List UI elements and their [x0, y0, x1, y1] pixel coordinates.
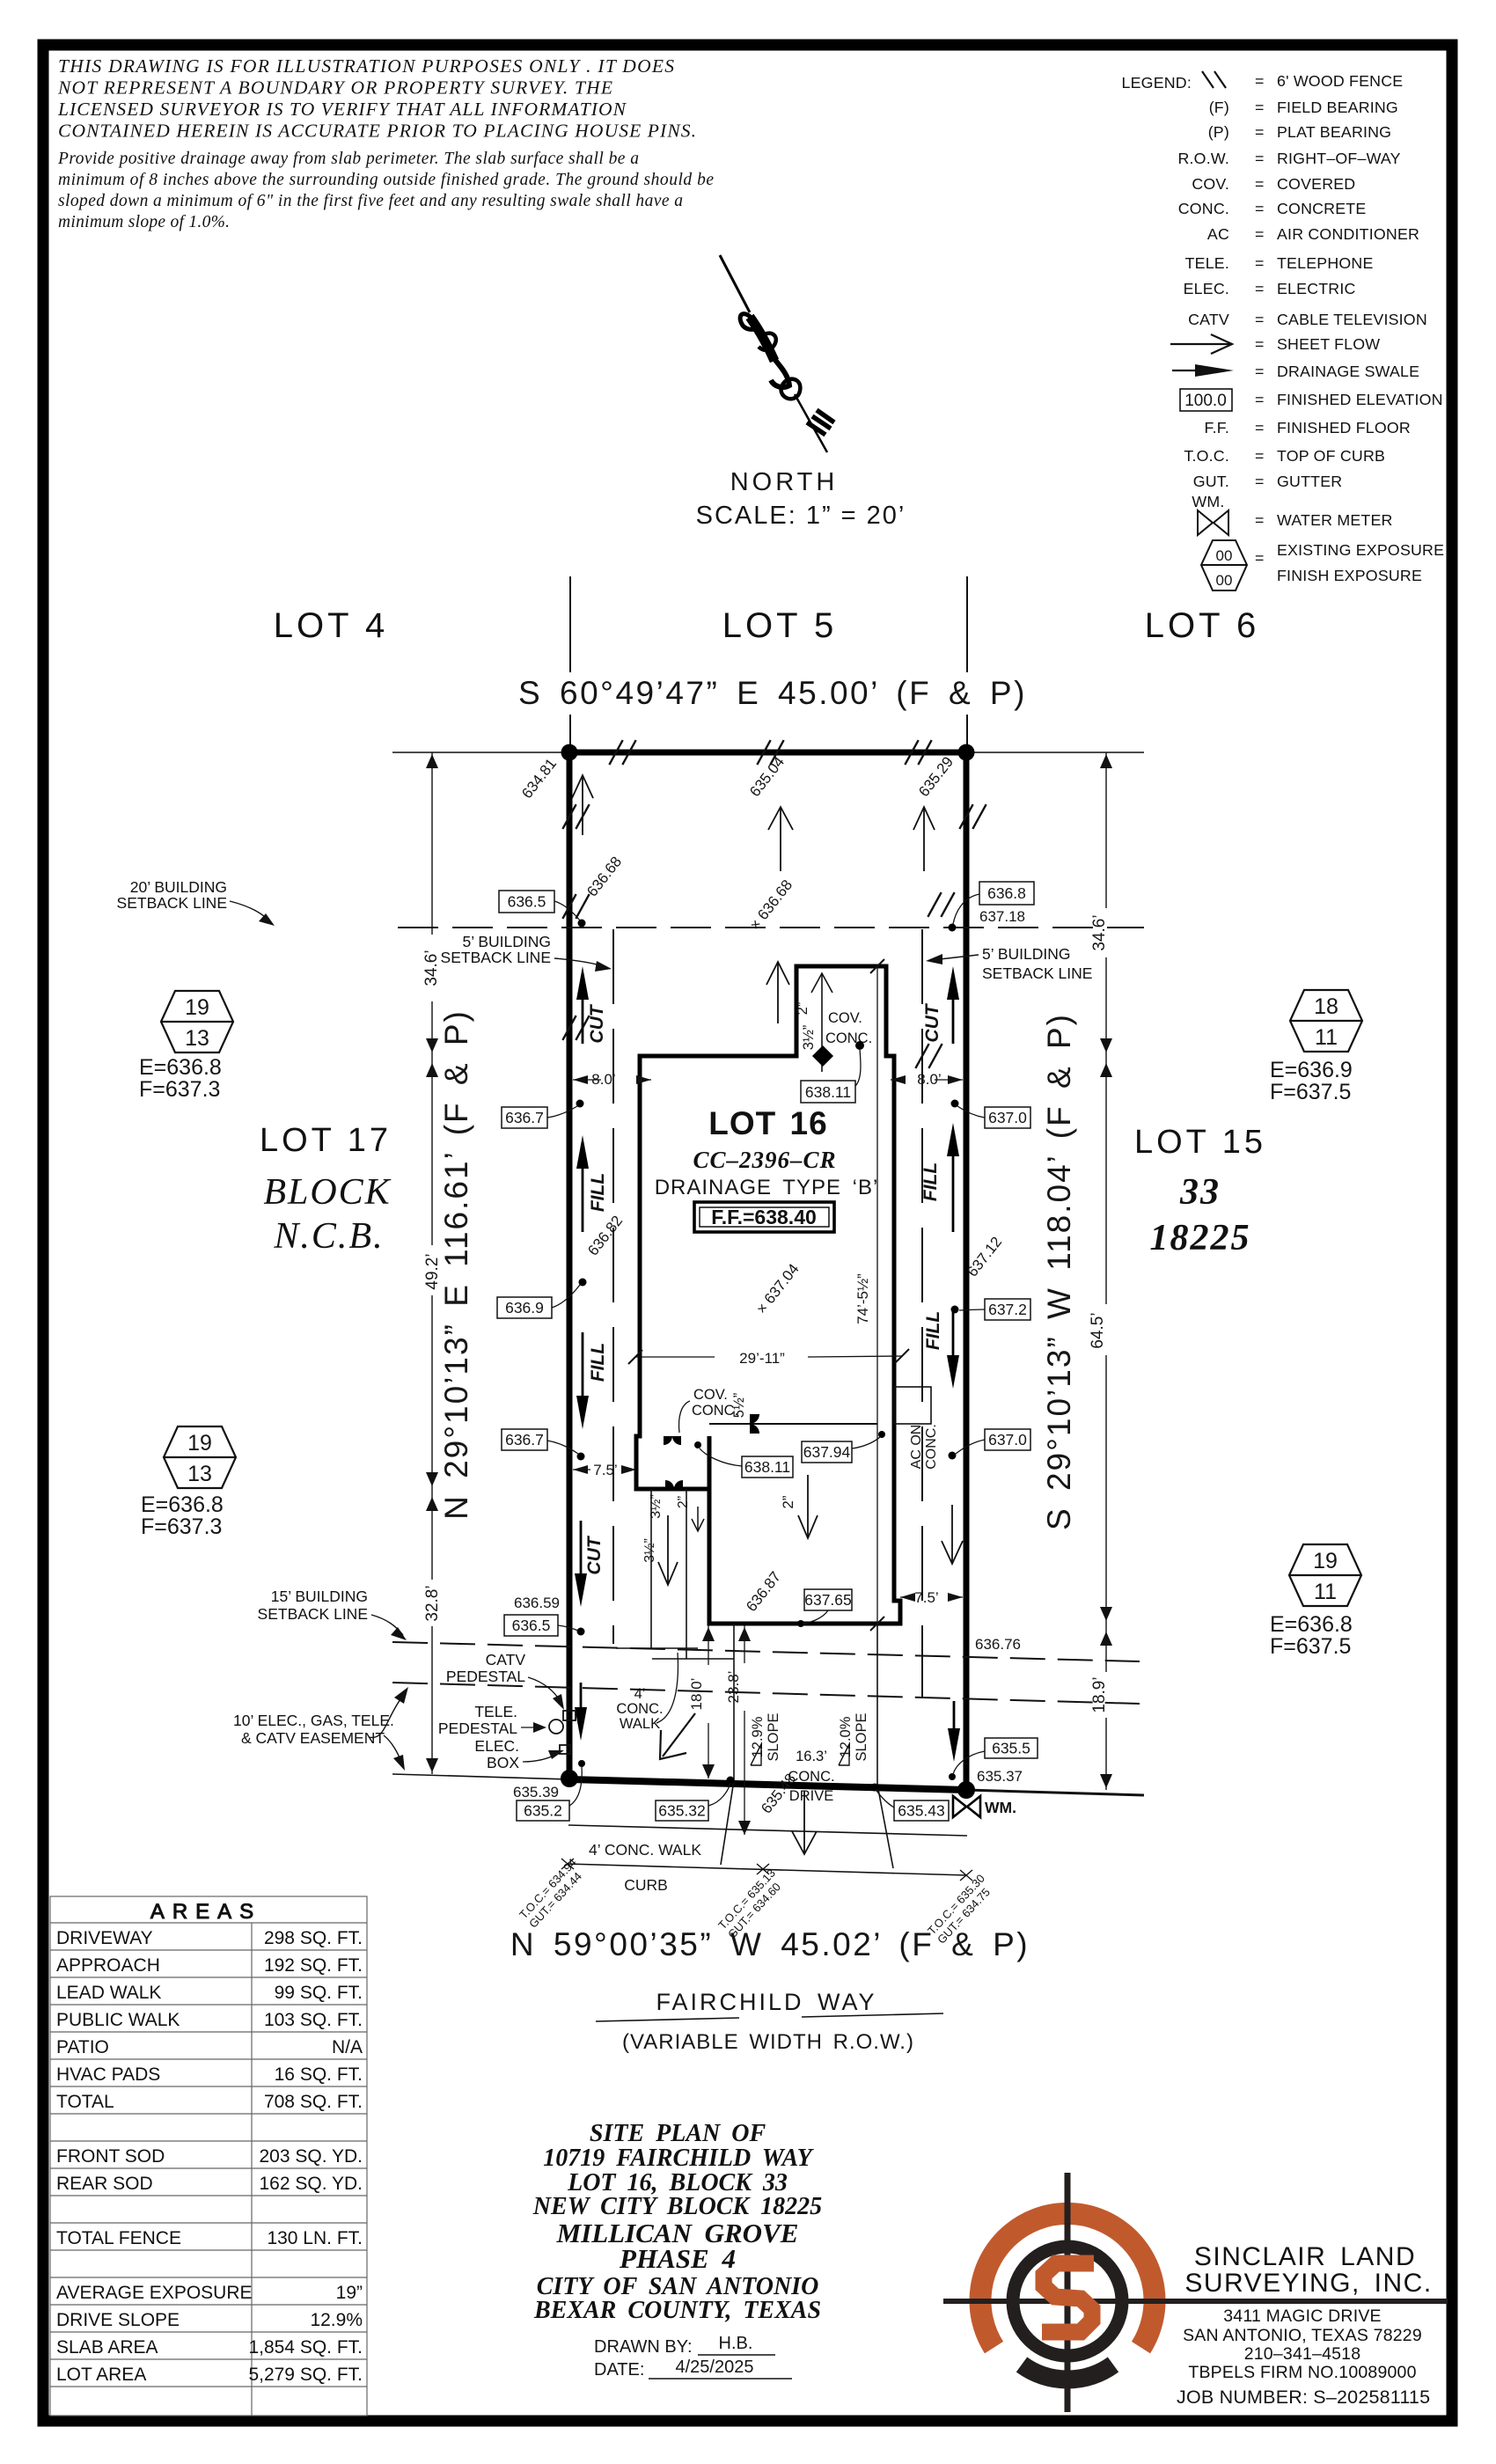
svg-text:130 LN. FT.: 130 LN. FT. [267, 2228, 363, 2248]
svg-text:HVAC PADS: HVAC PADS [56, 2064, 160, 2085]
svg-text:minimum slope of 1.0%.: minimum slope of 1.0%. [58, 213, 230, 231]
svg-text:TELE.: TELE. [474, 1703, 517, 1720]
svg-text:16.3’: 16.3’ [796, 1749, 827, 1764]
svg-text:11: 11 [1314, 1580, 1337, 1604]
svg-text:NOT REPRESENT A BOUNDARY OR PR: NOT REPRESENT A BOUNDARY OR PROPERTY SUR… [57, 77, 612, 99]
svg-text:CATV: CATV [1188, 311, 1229, 328]
svg-text:18.9’: 18.9’ [1090, 1676, 1109, 1712]
svg-text:=: = [1255, 175, 1265, 193]
svg-text:=: = [1255, 311, 1265, 328]
svg-text:CABLE TELEVISION: CABLE TELEVISION [1277, 311, 1427, 328]
svg-text:JOB NUMBER: S–202581115: JOB NUMBER: S–202581115 [1177, 2387, 1430, 2408]
svg-text:LOT 6: LOT 6 [1145, 606, 1259, 645]
svg-text:E=636.8: E=636.8 [141, 1492, 224, 1517]
svg-text:F=637.3: F=637.3 [141, 1514, 222, 1539]
svg-text:SETBACK LINE: SETBACK LINE [117, 894, 227, 912]
svg-text:H.B.: H.B. [719, 2334, 753, 2353]
svg-text:162 SQ. YD.: 162 SQ. YD. [259, 2174, 363, 2194]
svg-text:6' WOOD FENCE: 6' WOOD FENCE [1277, 72, 1403, 90]
svg-text:210–341–4518: 210–341–4518 [1244, 2344, 1361, 2364]
svg-text:DRAINAGE TYPE ‘B’: DRAINAGE TYPE ‘B’ [655, 1176, 879, 1199]
svg-text:CONC.: CONC. [616, 1701, 663, 1717]
svg-text:637.18: 637.18 [979, 908, 1025, 925]
svg-text:FINISHED FLOOR: FINISHED FLOOR [1277, 419, 1411, 436]
svg-text:00: 00 [1216, 547, 1233, 564]
svg-text:CONC.: CONC. [692, 1403, 738, 1419]
svg-text:GUTTER: GUTTER [1277, 473, 1342, 490]
svg-text:FINISHED ELEVATION: FINISHED ELEVATION [1277, 391, 1443, 408]
svg-text:PHASE 4: PHASE 4 [619, 2243, 736, 2274]
svg-text:PEDESTAL: PEDESTAL [438, 1720, 517, 1737]
svg-text:N.C.B.: N.C.B. [273, 1216, 384, 1257]
svg-text:99 SQ. FT.: 99 SQ. FT. [275, 1983, 363, 2003]
svg-text:CONC.: CONC. [1178, 200, 1229, 217]
svg-text:3411 MAGIC DRIVE: 3411 MAGIC DRIVE [1223, 2306, 1381, 2326]
svg-text:FRONT SOD: FRONT SOD [56, 2146, 165, 2167]
svg-text:DRAINAGE SWALE: DRAINAGE SWALE [1277, 363, 1419, 380]
svg-text:F.F.=638.40: F.F.=638.40 [711, 1206, 817, 1228]
svg-text:TELEPHONE: TELEPHONE [1277, 254, 1374, 272]
svg-text:23.8’: 23.8’ [725, 1671, 742, 1704]
svg-text:TOTAL: TOTAL [56, 2092, 114, 2112]
svg-text:COV.: COV. [1192, 175, 1229, 193]
svg-text:638.11: 638.11 [805, 1083, 851, 1101]
svg-text:=: = [1255, 254, 1265, 272]
svg-text:TOP OF CURB: TOP OF CURB [1277, 447, 1385, 465]
svg-text:5’ BUILDING: 5’ BUILDING [982, 945, 1071, 963]
svg-text:ELECTRIC: ELECTRIC [1277, 280, 1356, 297]
svg-text:FILL: FILL [588, 1343, 608, 1382]
svg-text:COVERED: COVERED [1277, 175, 1355, 193]
svg-text:FILL: FILL [588, 1173, 608, 1212]
svg-text:636.5: 636.5 [512, 1617, 551, 1634]
svg-text:GUT.: GUT. [1193, 473, 1229, 490]
svg-text:298 SQ. FT.: 298 SQ. FT. [264, 1928, 363, 1948]
svg-text:32.8’: 32.8’ [423, 1585, 442, 1621]
svg-text:203 SQ. YD.: 203 SQ. YD. [259, 2146, 363, 2167]
svg-text:636.9: 636.9 [505, 1299, 544, 1316]
svg-text:FILL: FILL [920, 1162, 941, 1201]
svg-text:NORTH: NORTH [730, 468, 839, 496]
svg-text:PATIO: PATIO [56, 2037, 109, 2057]
svg-text:APPROACH: APPROACH [56, 1955, 160, 1976]
svg-text:ELEC.: ELEC. [474, 1737, 519, 1755]
svg-text:10719 FAIRCHILD WAY: 10719 FAIRCHILD WAY [543, 2145, 814, 2172]
svg-text:CONTAINED HEREIN IS ACCURATE P: CONTAINED HEREIN IS ACCURATE PRIOR TO PL… [58, 121, 696, 142]
svg-text:SCALE: 1” = 20’: SCALE: 1” = 20’ [696, 502, 906, 530]
svg-text:SLAB AREA: SLAB AREA [56, 2337, 158, 2358]
svg-text:20’ BUILDING: 20’ BUILDING [130, 878, 227, 896]
svg-text:DRIVE: DRIVE [789, 1788, 833, 1804]
svg-text:PEDESTAL: PEDESTAL [446, 1668, 525, 1685]
svg-text:100.0: 100.0 [1184, 392, 1227, 410]
svg-text:S 60°49’47” E 45.00’ (F &: S 60°49’47” E 45.00’ (F & P) [518, 675, 1027, 711]
svg-text:SLOPE: SLOPE [854, 1712, 869, 1761]
svg-text:=: = [1255, 200, 1265, 217]
svg-text:WM.: WM. [1192, 493, 1224, 510]
svg-text:34.6’: 34.6’ [1090, 914, 1109, 950]
svg-text:=: = [1255, 280, 1265, 297]
svg-text:192 SQ. FT.: 192 SQ. FT. [264, 1955, 363, 1976]
svg-text:635.43: 635.43 [898, 1802, 945, 1820]
svg-text:WATER METER: WATER METER [1277, 511, 1393, 529]
svg-text:34.6’: 34.6’ [422, 950, 441, 986]
svg-text:CUT: CUT [922, 1002, 942, 1042]
svg-text:FIELD BEARING: FIELD BEARING [1277, 99, 1398, 116]
svg-text:=: = [1255, 473, 1265, 490]
svg-text:LICENSED SURVEYOR IS TO VERIFY: LICENSED SURVEYOR IS TO VERIFY THAT ALL … [57, 99, 627, 120]
svg-text:CUT: CUT [587, 1003, 607, 1043]
svg-text:(P): (P) [1208, 123, 1229, 141]
svg-text:4’ CONC. WALK: 4’ CONC. WALK [589, 1841, 701, 1859]
svg-text:=: = [1255, 123, 1265, 141]
svg-text:WM.: WM. [985, 1799, 1016, 1816]
svg-text:636.7: 636.7 [505, 1109, 544, 1126]
svg-text:636.76: 636.76 [975, 1636, 1021, 1653]
svg-text:LOT 15: LOT 15 [1134, 1124, 1266, 1161]
svg-text:AC: AC [1207, 225, 1229, 243]
svg-text:& CATV EASEMENT: & CATV EASEMENT [241, 1729, 385, 1747]
svg-text:NEW CITY BLOCK 18225: NEW CITY BLOCK 18225 [532, 2193, 822, 2220]
svg-text:PUBLIC WALK: PUBLIC WALK [56, 2010, 180, 2030]
svg-text:THIS DRAWING IS FOR ILLUSTRATI: THIS DRAWING IS FOR ILLUSTRATION PURPOSE… [58, 55, 674, 77]
svg-text:CUT: CUT [584, 1535, 605, 1574]
svg-text:637.0: 637.0 [988, 1431, 1027, 1448]
svg-text:708 SQ. FT.: 708 SQ. FT. [264, 2092, 363, 2112]
svg-text:637.2: 637.2 [988, 1301, 1027, 1318]
svg-text:SETBACK LINE: SETBACK LINE [441, 949, 551, 966]
svg-text:00: 00 [1216, 572, 1233, 589]
svg-text:SURVEYING, INC.: SURVEYING, INC. [1184, 2269, 1432, 2298]
svg-text:635.2: 635.2 [524, 1802, 562, 1820]
svg-text:=: = [1255, 419, 1265, 436]
svg-text:2”: 2” [795, 1002, 810, 1016]
svg-text:=: = [1255, 150, 1265, 167]
svg-text:SETBACK LINE: SETBACK LINE [258, 1605, 368, 1623]
svg-text:F=637.5: F=637.5 [1270, 1080, 1351, 1104]
svg-text:T.O.C.: T.O.C. [1184, 447, 1229, 465]
svg-text:COV.: COV. [693, 1387, 728, 1403]
svg-text:636.59: 636.59 [514, 1595, 560, 1611]
svg-text:=: = [1255, 72, 1265, 90]
svg-text:5’ BUILDING: 5’ BUILDING [463, 933, 552, 950]
svg-text:CONC.: CONC. [825, 1030, 872, 1046]
svg-text:DRAWN BY:: DRAWN BY: [594, 2337, 693, 2357]
svg-text:636.8: 636.8 [987, 884, 1026, 902]
svg-text:1,854 SQ. FT.: 1,854 SQ. FT. [248, 2337, 363, 2358]
svg-text:DRIVE SLOPE: DRIVE SLOPE [56, 2310, 180, 2330]
svg-text:2”: 2” [780, 1495, 796, 1508]
svg-text:AVERAGE EXPOSURE: AVERAGE EXPOSURE [56, 2283, 253, 2303]
svg-text:DRIVEWAY: DRIVEWAY [56, 1928, 153, 1948]
svg-text:LOT 17: LOT 17 [260, 1122, 392, 1159]
svg-text:LOT 4: LOT 4 [274, 606, 388, 645]
svg-text:minimum of 8 inches above the: minimum of 8 inches above the surroundin… [58, 171, 714, 189]
svg-text:F=637.5: F=637.5 [1270, 1634, 1351, 1659]
svg-text:CATV: CATV [486, 1651, 526, 1668]
svg-text:10’ ELEC., GAS, TELE.: 10’ ELEC., GAS, TELE. [233, 1712, 394, 1729]
svg-text:WALK: WALK [620, 1716, 660, 1732]
svg-text:N 59°00’35” W 45.02’ (F &: N 59°00’35” W 45.02’ (F & P) [510, 1926, 1030, 1962]
svg-text:BOX: BOX [487, 1754, 519, 1771]
svg-text:E=636.9: E=636.9 [1270, 1058, 1353, 1082]
svg-text:EXISTING EXPOSURE: EXISTING EXPOSURE [1277, 541, 1444, 559]
svg-text:sloped down a minimum of 6" in: sloped down a minimum of 6" in the first… [58, 192, 683, 210]
svg-text:635.37: 635.37 [977, 1768, 1023, 1785]
svg-text:S 29°10’13” W 118.04’ (F &: S 29°10’13” W 118.04’ (F & P) [1041, 1013, 1077, 1530]
svg-text:(VARIABLE WIDTH R.O.W.): (VARIABLE WIDTH R.O.W.) [622, 2030, 914, 2054]
svg-text:19”: 19” [336, 2283, 363, 2303]
svg-text:18.0’: 18.0’ [688, 1678, 705, 1711]
svg-text:TELE.: TELE. [1185, 254, 1229, 272]
svg-text:SLOPE: SLOPE [766, 1712, 781, 1761]
svg-text:636.5: 636.5 [508, 893, 546, 911]
svg-text:AC ON: AC ON [909, 1425, 924, 1470]
svg-text:AIR CONDITIONER: AIR CONDITIONER [1277, 225, 1419, 243]
svg-text:TBPELS FIRM NO.10089000: TBPELS FIRM NO.10089000 [1188, 2363, 1416, 2382]
svg-text:CC–2396–CR: CC–2396–CR [693, 1147, 836, 1173]
svg-text:Provide positive drainage away: Provide positive drainage away from slab… [57, 150, 639, 168]
svg-text:4/25/2025: 4/25/2025 [676, 2358, 754, 2377]
svg-text:SITE PLAN OF: SITE PLAN OF [590, 2120, 766, 2147]
svg-text:637.65: 637.65 [804, 1591, 852, 1609]
svg-text:636.7: 636.7 [505, 1431, 544, 1448]
svg-text:3½”: 3½” [642, 1538, 657, 1563]
svg-text:12.9%: 12.9% [310, 2310, 363, 2330]
svg-text:FAIRCHILD WAY: FAIRCHILD WAY [656, 1989, 876, 2015]
svg-text:=: = [1255, 99, 1265, 116]
svg-text:=: = [1255, 225, 1265, 243]
svg-text:13: 13 [187, 1462, 212, 1486]
svg-text:(F): (F) [1209, 99, 1229, 116]
svg-text:DATE:: DATE: [594, 2360, 644, 2380]
svg-text:635.32: 635.32 [658, 1802, 706, 1820]
svg-text:15’ BUILDING: 15’ BUILDING [271, 1588, 368, 1605]
svg-text:19: 19 [1313, 1549, 1338, 1573]
svg-text:637.0: 637.0 [988, 1109, 1027, 1126]
svg-text:CONCRETE: CONCRETE [1277, 200, 1366, 217]
svg-text:R.O.W.: R.O.W. [1178, 150, 1230, 167]
svg-text:4’: 4’ [634, 1686, 646, 1702]
svg-text:13: 13 [185, 1026, 209, 1051]
svg-text:SETBACK LINE: SETBACK LINE [982, 964, 1092, 982]
svg-text:=: = [1255, 391, 1265, 408]
svg-text:BEXAR COUNTY, TEXAS: BEXAR COUNTY, TEXAS [533, 2297, 821, 2324]
svg-text:2”: 2” [676, 1496, 691, 1508]
svg-text:ELEC.: ELEC. [1184, 280, 1229, 297]
svg-text:SAN ANTONIO, TEXAS 78229: SAN ANTONIO, TEXAS 78229 [1183, 2326, 1422, 2345]
svg-text:FINISH EXPOSURE: FINISH EXPOSURE [1277, 567, 1422, 584]
svg-text:E=636.8: E=636.8 [139, 1055, 222, 1080]
svg-text:PLAT BEARING: PLAT BEARING [1277, 123, 1391, 141]
svg-text:635.39: 635.39 [513, 1784, 559, 1800]
svg-text:=: = [1255, 335, 1265, 353]
svg-text:N/A: N/A [332, 2037, 363, 2057]
svg-text:E=636.8: E=636.8 [1270, 1612, 1353, 1637]
svg-text:AREAS: AREAS [150, 1900, 261, 1924]
svg-text:LOT AREA: LOT AREA [56, 2365, 146, 2385]
svg-text:635.5: 635.5 [992, 1740, 1030, 1757]
svg-text:11: 11 [1315, 1025, 1338, 1050]
svg-text:7.5’: 7.5’ [593, 1462, 617, 1478]
svg-text:=: = [1255, 549, 1265, 567]
svg-text:18225: 18225 [1150, 1218, 1251, 1258]
svg-text:SINCLAIR LAND: SINCLAIR LAND [1194, 2242, 1416, 2271]
svg-text:103 SQ. FT.: 103 SQ. FT. [264, 2010, 363, 2030]
svg-text:RIGHT–OF–WAY: RIGHT–OF–WAY [1277, 150, 1401, 167]
svg-text:=: = [1255, 363, 1265, 380]
svg-text:5,279 SQ. FT.: 5,279 SQ. FT. [248, 2365, 363, 2385]
svg-text:7.5’: 7.5’ [914, 1589, 938, 1606]
svg-text:74’-5½”: 74’-5½” [854, 1273, 871, 1324]
svg-text:CURB: CURB [624, 1876, 668, 1894]
svg-text:COV.: COV. [828, 1010, 862, 1026]
svg-text:638.11: 638.11 [744, 1458, 790, 1476]
svg-text:LEGEND:: LEGEND: [1122, 74, 1192, 92]
svg-text:33: 33 [1179, 1172, 1221, 1213]
svg-text:TOTAL FENCE: TOTAL FENCE [56, 2228, 181, 2248]
svg-text:LOT 5: LOT 5 [722, 606, 837, 645]
svg-text:LEAD WALK: LEAD WALK [56, 1983, 161, 2003]
svg-text:18: 18 [1314, 994, 1338, 1019]
svg-text:F=637.3: F=637.3 [139, 1077, 220, 1102]
svg-text:16 SQ. FT.: 16 SQ. FT. [275, 2064, 363, 2085]
svg-text:REAR SOD: REAR SOD [56, 2174, 153, 2194]
svg-text:LOT 16: LOT 16 [708, 1105, 827, 1141]
svg-text:637.94: 637.94 [803, 1443, 851, 1461]
svg-text:FILL: FILL [923, 1311, 943, 1350]
svg-text:64.5’: 64.5’ [1089, 1312, 1107, 1348]
svg-text:3½”: 3½” [801, 1025, 817, 1050]
svg-text:SHEET FLOW: SHEET FLOW [1277, 335, 1380, 353]
svg-text:BLOCK: BLOCK [263, 1172, 391, 1213]
svg-text:=: = [1255, 447, 1265, 465]
svg-text:F.F.: F.F. [1205, 419, 1229, 436]
svg-text:19: 19 [185, 995, 209, 1020]
svg-text:N 29°10’13” E 116.61’ (F &: N 29°10’13” E 116.61’ (F & P) [438, 1009, 474, 1520]
svg-text:CONC.: CONC. [924, 1424, 939, 1470]
svg-text:29’-11”: 29’-11” [739, 1350, 785, 1367]
svg-text:19: 19 [187, 1431, 212, 1456]
svg-text:=: = [1255, 511, 1265, 529]
